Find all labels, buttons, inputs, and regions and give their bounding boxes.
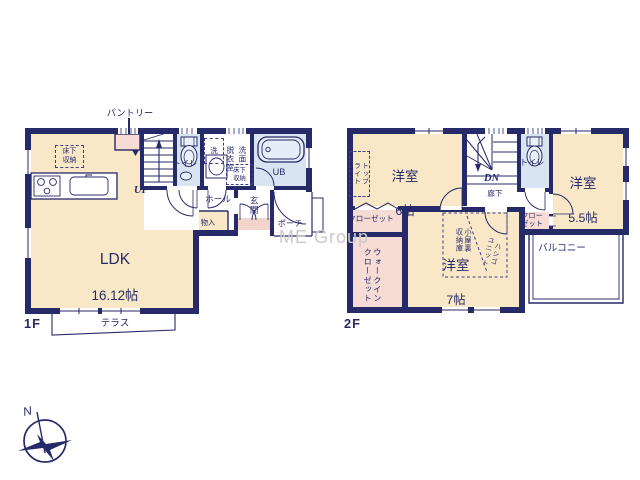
compass-bird <box>18 434 72 461</box>
ldk-label: LDK 16.12帖 <box>60 232 170 323</box>
hand-basin-icon <box>181 172 192 180</box>
room-55jo-name: 洋室 <box>550 176 616 192</box>
closet-right-label: クロー ゼット <box>515 212 549 229</box>
toilet-2f-label: トイレ <box>512 158 552 168</box>
entrance-label: 玄関 <box>249 189 259 223</box>
balcony-label: バルコニー <box>532 243 592 254</box>
walkin-closet-label: ウォークイン クローゼット <box>362 240 381 312</box>
corridor-label: 廊下 <box>477 190 513 199</box>
watermark: ME Group <box>279 227 369 248</box>
pantry-box <box>115 134 140 150</box>
stairs-down-label: DN <box>484 173 499 185</box>
floor2-tag: 2F <box>344 316 361 331</box>
terrace-label: テラス <box>85 318 145 329</box>
room-6jo-label: 洋室 6帖 <box>374 150 436 237</box>
underfloor-storage-wash-label: 床下 収納 <box>226 164 253 185</box>
room-55jo-size: 5.5帖 <box>550 211 616 226</box>
room-7jo-size: 7帖 <box>426 293 486 308</box>
ldk-name: LDK <box>60 251 170 269</box>
hall-label: ホール <box>198 194 238 204</box>
stairs-up-label: UP <box>134 185 148 197</box>
compass-icon: N <box>10 398 82 472</box>
skylight-label: トップ ライト <box>349 151 370 197</box>
room-6jo-name: 洋室 <box>374 169 436 185</box>
pantry-label: パントリー <box>98 108 162 119</box>
washer-label: 洗 <box>204 138 224 164</box>
kitchen-counter-icon <box>31 173 117 199</box>
storage-1f-label: 物入 <box>193 219 223 227</box>
floor1-tag: 1F <box>24 316 41 331</box>
floorplan-image: パントリー 床下 収納 LDK 16.12帖 UP トイレ 洗 脱衣室 洗面 床… <box>0 0 640 480</box>
pantry-leader-line <box>128 118 130 134</box>
toilet-1f-label: トイレ <box>170 159 200 169</box>
unit-bath-label: UB <box>268 167 290 178</box>
closet-left-label: クローゼット <box>342 215 400 224</box>
ldk-size: 16.12帖 <box>60 288 170 304</box>
bathtub-icon <box>258 137 304 162</box>
compass-circle <box>24 420 66 462</box>
compass-north-label: N <box>22 403 34 419</box>
room-55jo-label: 洋室 5.5帖 <box>550 157 616 244</box>
underfloor-storage-kitchen-label: 床下 収納 <box>55 145 84 168</box>
attic-storage-label: 小屋裏 収納庫 <box>455 211 472 269</box>
